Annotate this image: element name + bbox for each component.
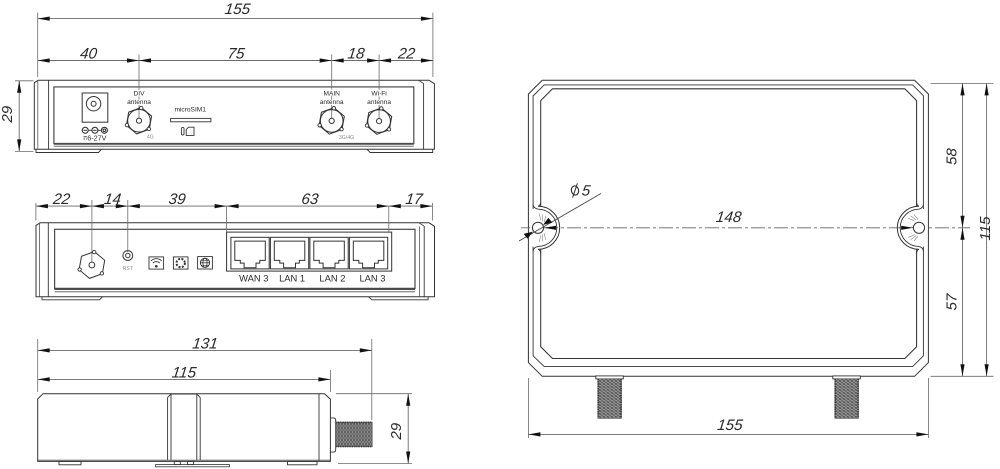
svg-text:antenna: antenna: [127, 99, 151, 106]
svg-text:14: 14: [103, 191, 122, 208]
svg-text:131: 131: [191, 335, 218, 352]
svg-text:75: 75: [227, 45, 246, 62]
svg-text:Wi-Fi: Wi-Fi: [371, 91, 387, 98]
svg-text:148: 148: [715, 209, 743, 226]
svg-text:3G/4G: 3G/4G: [339, 135, 354, 141]
svg-text:microSIM1: microSIM1: [174, 107, 206, 114]
svg-text:MAIN: MAIN: [323, 91, 340, 98]
svg-text:63: 63: [300, 191, 319, 208]
svg-text:antenna: antenna: [320, 99, 344, 106]
svg-text:39: 39: [168, 191, 187, 208]
svg-text:22: 22: [396, 45, 416, 62]
svg-text:29: 29: [0, 105, 16, 123]
svg-text:115: 115: [171, 364, 198, 381]
svg-text:LAN 2: LAN 2: [319, 272, 345, 283]
svg-text:155: 155: [716, 417, 744, 434]
svg-text:6-27V: 6-27V: [87, 134, 106, 143]
svg-text:LAN 1: LAN 1: [279, 272, 305, 283]
svg-text:29: 29: [388, 422, 405, 440]
svg-text:antenna: antenna: [367, 99, 391, 106]
svg-text:WAN 3: WAN 3: [239, 272, 268, 283]
svg-text:DIV: DIV: [134, 91, 146, 98]
svg-text:4G: 4G: [147, 135, 154, 141]
svg-text:58: 58: [944, 148, 961, 165]
svg-text:115: 115: [977, 216, 994, 241]
svg-text:155: 155: [224, 1, 252, 18]
svg-text:18: 18: [347, 45, 366, 62]
svg-text:17: 17: [405, 191, 424, 208]
svg-text:22: 22: [51, 191, 71, 208]
svg-text:RST: RST: [123, 266, 133, 272]
svg-text:LAN 3: LAN 3: [359, 272, 385, 283]
svg-text:40: 40: [79, 45, 98, 62]
svg-text:57: 57: [944, 293, 961, 310]
